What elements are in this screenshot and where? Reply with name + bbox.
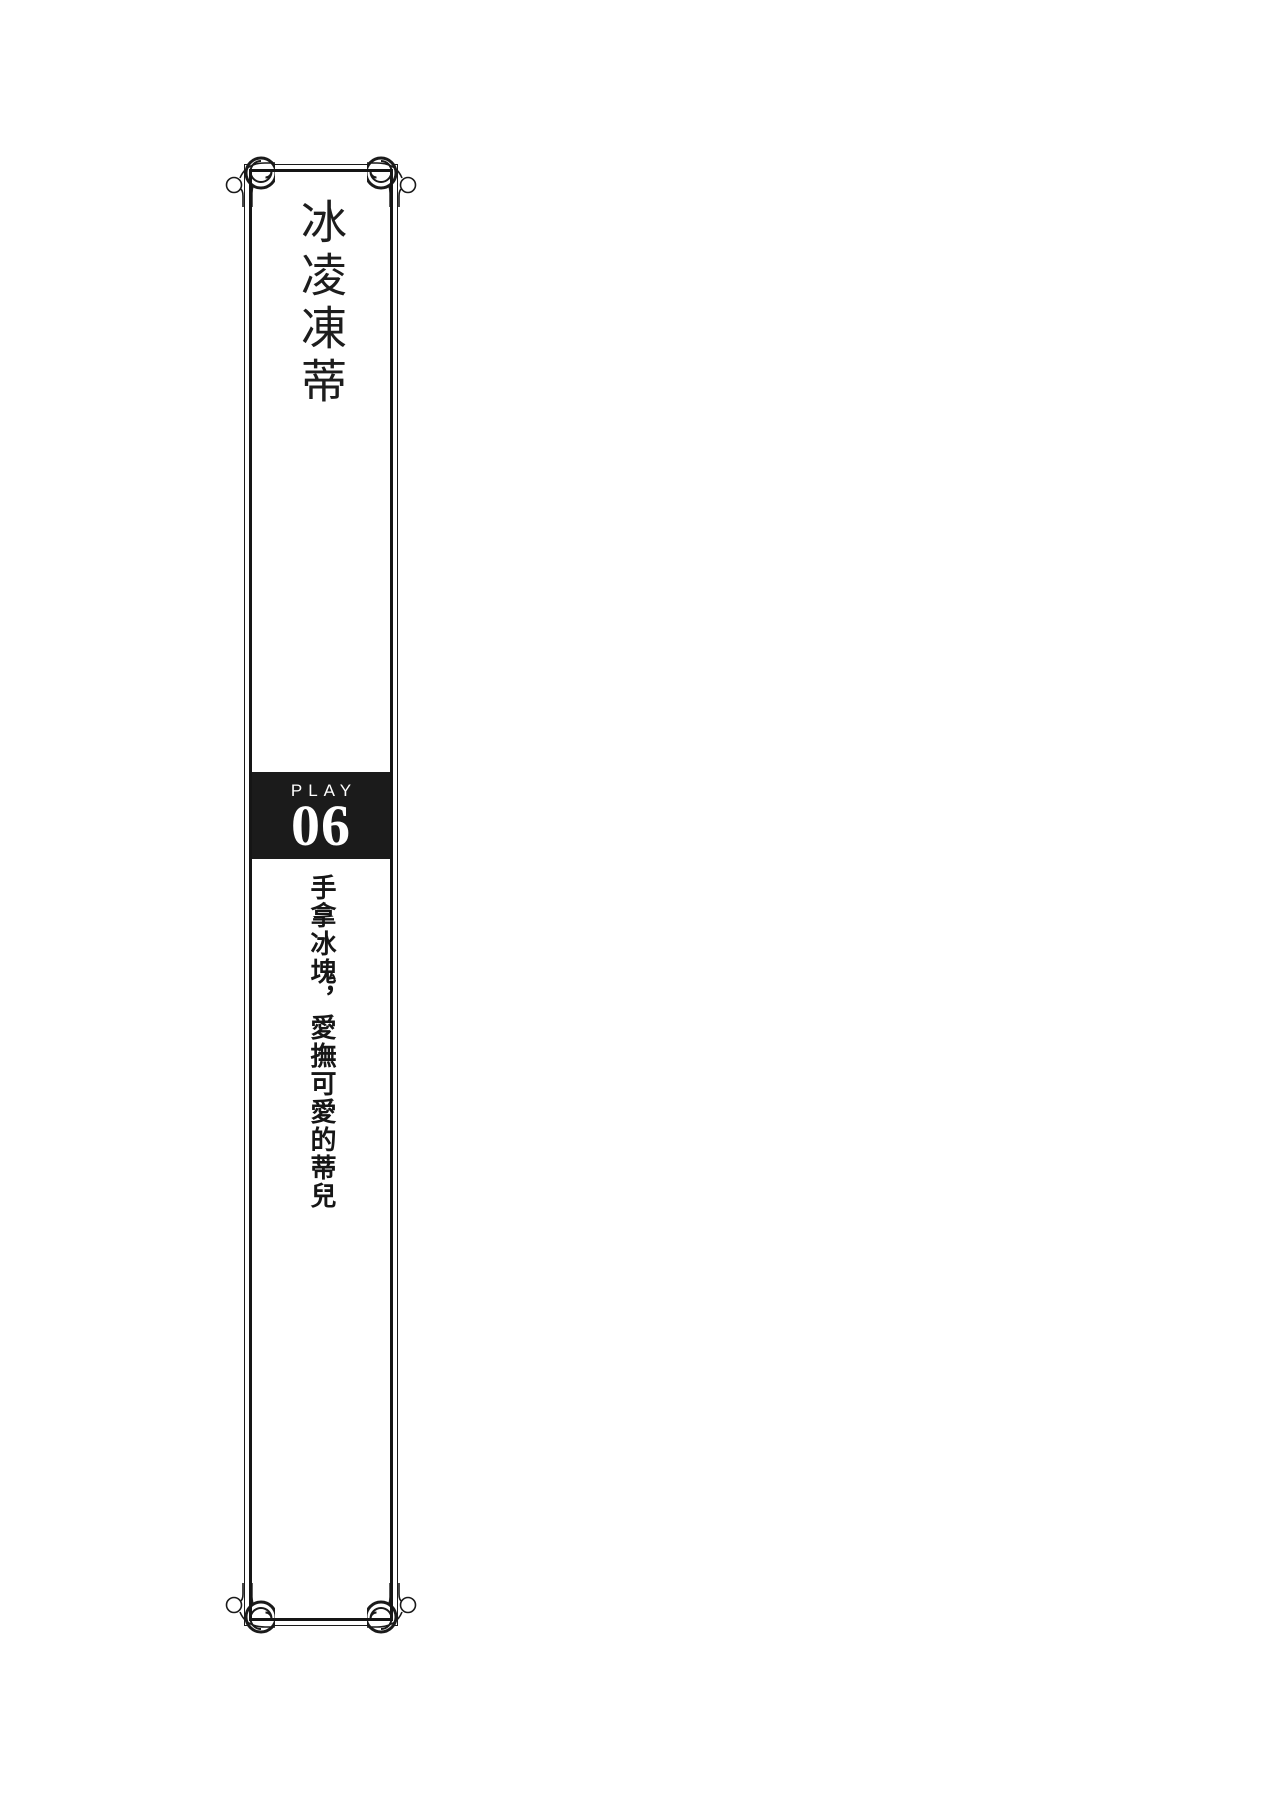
chapter-title-page: 冰凌凍蒂 PLAY 06 手拿冰塊，愛撫可愛的蒂兒 <box>0 0 1280 1812</box>
frame-content: 冰凌凍蒂 PLAY 06 手拿冰塊，愛撫可愛的蒂兒 <box>252 172 390 1618</box>
chapter-series-title: 冰凌凍蒂 <box>298 198 344 410</box>
chapter-number-box: PLAY 06 <box>252 772 390 859</box>
decorative-frame-inner-border: 冰凌凍蒂 PLAY 06 手拿冰塊，愛撫可愛的蒂兒 <box>249 169 393 1621</box>
decorative-frame: 冰凌凍蒂 PLAY 06 手拿冰塊，愛撫可愛的蒂兒 <box>244 164 398 1626</box>
chapter-subtitle: 手拿冰塊，愛撫可愛的蒂兒 <box>308 874 334 1210</box>
play-number: 06 <box>291 799 351 852</box>
